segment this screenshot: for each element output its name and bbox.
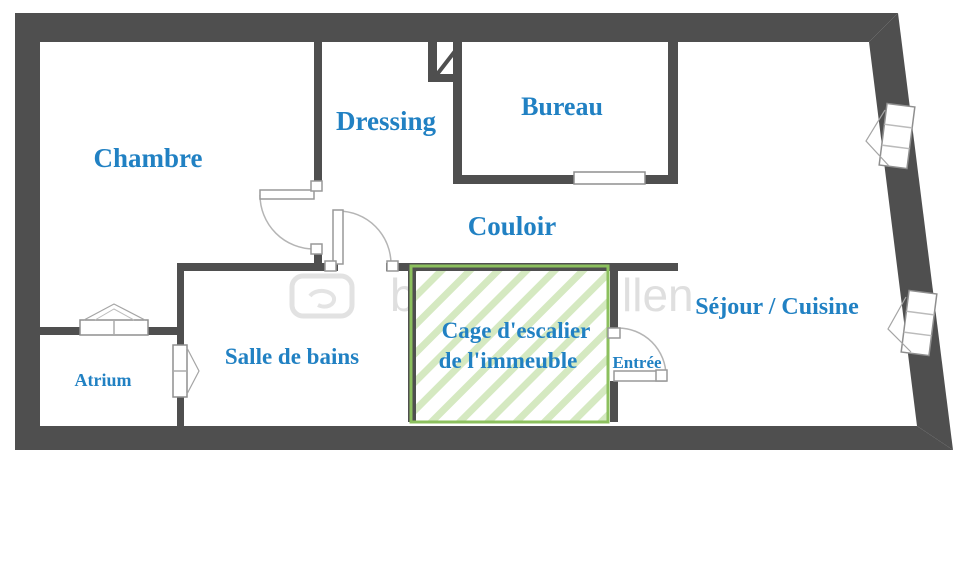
watermark-swirl-icon <box>310 291 334 307</box>
exterior-wall-top <box>15 13 898 42</box>
wall-dressing-stub-foot <box>428 74 455 82</box>
bathroom-door-icon <box>325 210 398 271</box>
wall-bureau-left <box>453 42 462 184</box>
watermark-logo-icon <box>292 276 352 316</box>
wall-chambre-bottom <box>177 263 338 271</box>
room-label-entree: Entrée <box>612 353 662 372</box>
staircase-label-line2: de l'immeuble <box>439 348 578 373</box>
room-label-couloir: Couloir <box>468 211 557 241</box>
floor-plan: b llen <box>0 0 980 455</box>
watermark-fragment-right: llen <box>622 269 694 321</box>
footer: Plan 2D bskimmobilier by Kévin LEXA <box>0 455 980 575</box>
wall-staircase-right-lower <box>610 381 618 422</box>
wall-staircase-right-upper <box>610 271 618 331</box>
floor-plan-page: b llen <box>0 0 980 575</box>
room-label-dressing: Dressing <box>336 106 437 136</box>
room-label-chambre: Chambre <box>93 143 202 173</box>
wall-bathroom-left-lower <box>177 396 184 427</box>
wall-atrium-top-right <box>147 327 183 335</box>
exterior-wall-right <box>869 13 953 450</box>
bureau-window-icon <box>574 172 645 184</box>
wall-chambre-dressing <box>314 42 322 187</box>
wall-atrium-top-left <box>40 327 82 335</box>
room-label-bureau: Bureau <box>521 92 603 121</box>
room-label-salle-de-bains: Salle de bains <box>225 344 359 369</box>
wall-dressing-stub <box>428 42 437 78</box>
exterior-wall-bottom <box>15 426 953 450</box>
chambre-door-icon <box>260 181 322 254</box>
exterior-wall-left <box>15 13 40 450</box>
room-label-sejour-cuisine: Séjour / Cuisine <box>695 294 859 320</box>
staircase-label-line1: Cage d'escalier <box>442 318 591 343</box>
staircase-hatch-area <box>411 266 608 422</box>
wall-bureau-right <box>668 42 678 184</box>
room-label-atrium: Atrium <box>75 370 132 390</box>
